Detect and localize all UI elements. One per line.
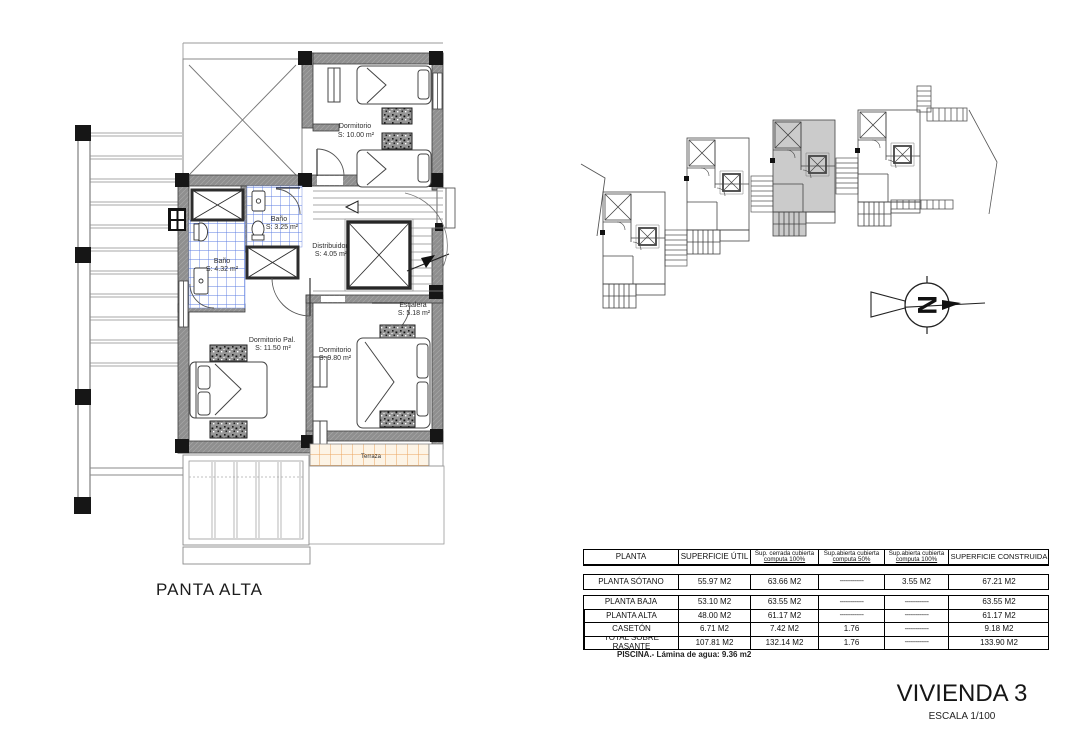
col-header: SUPERFICIE ÚTIL xyxy=(678,550,750,564)
cell-util: 55.97 M2 xyxy=(678,575,750,589)
wall-openings xyxy=(317,176,345,302)
cell-abierta100: 3.55 M2 xyxy=(884,575,948,589)
plan-caption: PANTA ALTA xyxy=(156,580,263,600)
table-main-rows: PLANTA BAJA 53.10 M2 63.55 M2 ----------… xyxy=(583,595,1049,650)
site-boundary-left xyxy=(581,164,605,236)
cell-cerrada: 63.55 M2 xyxy=(750,596,818,609)
rug-icon xyxy=(210,421,247,438)
cell-util: 48.00 M2 xyxy=(678,609,750,623)
cell-cerrada: 61.17 M2 xyxy=(750,609,818,623)
cell-abierta50: 1.76 xyxy=(818,636,884,650)
cell-cerrada: 132.14 M2 xyxy=(750,636,818,650)
col-header: SUPERFICIE CONSTRUIDA xyxy=(948,550,1049,564)
exterior-stair xyxy=(751,176,773,212)
bedroom-980-furniture xyxy=(313,325,430,449)
room-area: S: 10.00 m² xyxy=(338,132,375,139)
room-label: Dormitorio xyxy=(339,123,371,130)
col-header: PLANTA xyxy=(584,550,678,564)
cell-planta: TOTAL SOBRE RASANTE xyxy=(584,636,678,650)
pergola-deck-connector xyxy=(90,468,183,475)
vent-grid-icon xyxy=(168,208,186,231)
cell-construida: 9.18 M2 xyxy=(948,622,1049,636)
cell-abierta50: ------------- xyxy=(818,596,884,609)
cell-abierta50: 1.76 xyxy=(818,622,884,636)
areas-table-header: PLANTA SUPERFICIE ÚTIL Sup. cerrada cubi… xyxy=(583,549,1049,566)
cell-planta: CASETÓN xyxy=(584,622,678,636)
floor-plan-drawing: Dormitorio S: 10.00 m² Baño S: 3.25 m² B… xyxy=(55,25,475,570)
site-unit-2 xyxy=(684,138,749,254)
room-area: S: 9.80 m² xyxy=(319,355,352,362)
site-unit-1 xyxy=(600,192,665,308)
cell-abierta100: ------------- xyxy=(884,636,948,650)
col-header: Sup.abierta cubierta computa 100% xyxy=(884,550,948,564)
cell-abierta50: ------------- xyxy=(818,609,884,623)
cell-construida: 67.21 M2 xyxy=(948,575,1049,589)
room-area: S: 4.32 m² xyxy=(206,266,239,273)
rug-icon xyxy=(382,108,412,124)
cell-planta: PLANTA BAJA xyxy=(584,596,678,609)
cell-planta: PLANTA SÓTANO xyxy=(584,575,678,589)
room-label: Terraza xyxy=(361,454,382,460)
cell-util: 107.81 M2 xyxy=(678,636,750,650)
exterior-stair xyxy=(836,158,858,194)
room-label: Dormitorio xyxy=(319,347,351,354)
room-label: Baño xyxy=(271,216,287,223)
cell-abierta100: ------------- xyxy=(884,622,948,636)
cell-construida: 133.90 M2 xyxy=(948,636,1049,650)
col-header: Sup.abierta cubierta computa 50% xyxy=(818,550,884,564)
rug-icon xyxy=(380,411,415,427)
col-header: Sup. cerrada cubierta computa 100% xyxy=(750,550,818,564)
site-plan-drawing: N xyxy=(565,80,1025,360)
cell-util: 6.71 M2 xyxy=(678,622,750,636)
north-arrow-icon: N xyxy=(871,276,985,334)
room-area: S: 5.18 m² xyxy=(398,310,431,317)
cell-cerrada: 63.66 M2 xyxy=(750,575,818,589)
stair-direction-arrow xyxy=(346,201,358,213)
room-area: S: 3.25 m² xyxy=(266,224,299,231)
room-label: Baño xyxy=(214,258,230,265)
drawing-sheet: Dormitorio S: 10.00 m² Baño S: 3.25 m² B… xyxy=(0,0,1076,749)
staircase xyxy=(313,191,449,291)
cell-cerrada: 7.42 M2 xyxy=(750,622,818,636)
title-block: VIVIENDA 3 ESCALA 1/100 xyxy=(852,680,1072,722)
cell-abierta50: ------------- xyxy=(818,575,884,589)
room-label: Distribuidor xyxy=(312,243,348,250)
cell-construida: 63.55 M2 xyxy=(948,596,1049,609)
room-label: Dormitorio Pal. xyxy=(249,337,295,344)
sheet-title: VIVIENDA 3 xyxy=(852,680,1072,708)
rug-icon xyxy=(382,133,412,149)
unit-3-highlight xyxy=(773,120,835,236)
col-header-line2: computa 50% xyxy=(833,557,871,564)
room-area: S: 11.50 m² xyxy=(255,345,291,352)
cell-abierta100: ------------- xyxy=(884,609,948,623)
north-letter: N xyxy=(912,295,942,315)
rug-icon xyxy=(210,345,247,361)
cell-abierta100: ------------- xyxy=(884,596,948,609)
cell-construida: 61.17 M2 xyxy=(948,609,1049,623)
pergola-slats xyxy=(90,133,182,366)
pergola xyxy=(74,125,183,514)
col-header-line2: computa 100% xyxy=(896,557,937,564)
col-header-line2: computa 100% xyxy=(764,557,805,564)
cell-planta: PLANTA ALTA xyxy=(584,609,678,623)
cell-util: 53.10 M2 xyxy=(678,596,750,609)
void-room xyxy=(183,59,302,181)
sheet-scale: ESCALA 1/100 xyxy=(852,711,1072,722)
room-label: Escalera xyxy=(399,302,426,309)
pool-note: PISCINA.- Lámina de agua: 9.36 m2 xyxy=(617,650,751,659)
room-area: S: 4.05 m² xyxy=(315,251,348,258)
areas-table: PLANTA SUPERFICIE ÚTIL Sup. cerrada cubi… xyxy=(583,549,1049,650)
exterior-stair xyxy=(665,230,687,266)
table-row-sotano: PLANTA SÓTANO 55.97 M2 63.66 M2 --------… xyxy=(583,574,1049,590)
master-bedroom-furniture xyxy=(190,345,267,438)
deck xyxy=(183,455,444,564)
